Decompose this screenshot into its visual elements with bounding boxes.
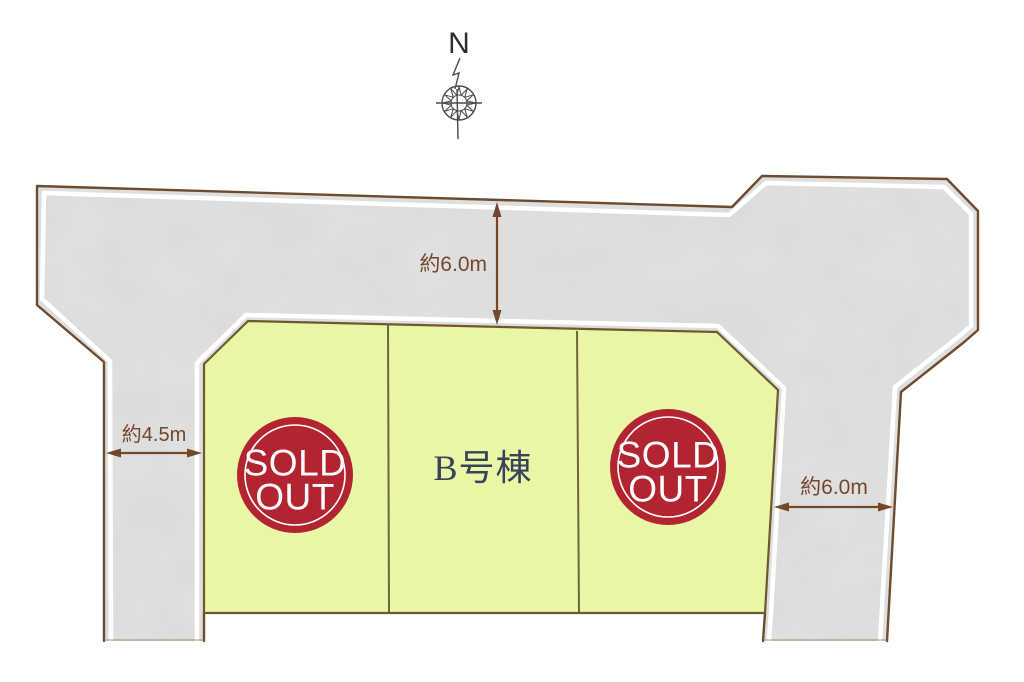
dimension-left-road-label: 約4.5m <box>122 423 186 446</box>
dimension-top-road-label: 約6.0m <box>419 253 487 276</box>
sold-out-badge-right: SOLD OUT <box>610 409 726 525</box>
sold-out-badge-left: SOLD OUT <box>237 417 353 533</box>
compass-flourish <box>453 58 460 89</box>
site-plan-page: B号棟 SOLD OUT SOLD OUT 約6.0m 約4 <box>0 0 1024 682</box>
compass-rose: N <box>436 27 482 139</box>
sold-out-badge-right-line2: OUT <box>628 469 708 510</box>
lot-middle-label: B号棟 <box>433 448 532 488</box>
compass-north-label: N <box>448 27 470 60</box>
lot-divider-left <box>388 324 389 612</box>
sold-out-badge-left-line2: OUT <box>255 477 335 518</box>
dimension-right-road-label: 約6.0m <box>800 476 868 499</box>
site-plan-svg: B号棟 SOLD OUT SOLD OUT 約6.0m 約4 <box>0 0 1024 682</box>
